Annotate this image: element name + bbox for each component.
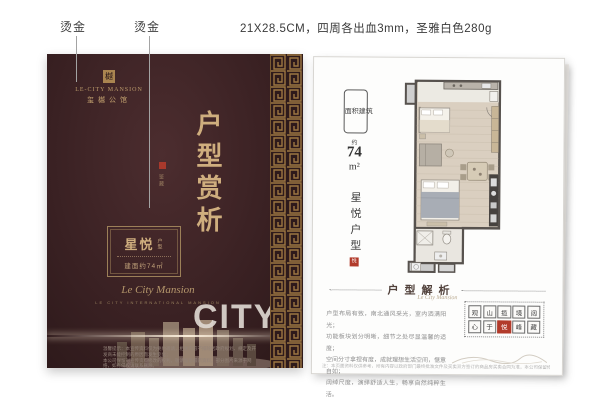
seal-cell: 山 [483,305,496,318]
leader-line-right [149,36,150,208]
area-value: 74 [343,144,365,161]
unit-name-row: 星悦 户型 [113,234,175,253]
analysis-paragraph: 户型布局有致，南北通风采光，室内洒满阳光； 功能板块划分明晰，细节之处尽显温馨的… [326,309,447,400]
unit-info-card: 星悦 户型 建面约74㎡ [107,226,181,277]
title-side-note: 鉴藏 [158,174,165,188]
area-unit: m² [343,161,365,172]
brochure-inner-page: 面 积 建 筑 约 74 m² 星悦户型 悦 [311,56,565,376]
unit-name-suffix: 户型 [157,238,164,250]
foil-stamp-label-right: 烫金 [134,18,160,35]
leader-line-left [76,36,77,82]
cover-fineprint-line: 温馨提示：本宣传资料仅为要约邀请，相关内容不排除因政府规划、规定及开发商未能控制… [103,346,258,358]
seal-cell: 境 [512,306,525,319]
cover-main-title: 户型赏析 [189,110,226,238]
unit-area: 建面约74㎡ [113,260,175,270]
fretwork-border-pattern [270,54,303,368]
paragraph-line: 户型布局有致，南北通风采光，室内洒满阳光； [326,309,446,333]
seal-cell-red: 悦 [498,320,511,333]
area-stamp-box: 面 积 建 筑 [344,89,368,133]
seal-cell: 峰 [512,320,525,333]
floor-plan-svg [403,78,522,275]
unit-info-card-inner: 星悦 户型 建面约74㎡ [110,229,178,274]
red-seal-icon: 悦 [350,257,359,266]
design-proof-canvas: 烫金 烫金 21X28.5CM，四周各出血3mm，圣雅白色280g 樾 LE-C… [0,0,600,400]
seal-cell: 心 [468,320,481,333]
unit-name: 星悦 [124,234,154,253]
paragraph-line: 功能板块划分明晰，细节之处尽显温馨的适度； [326,332,446,356]
brand-seal-icon: 樾 [103,70,115,83]
script-signature: Le City Mansion [47,284,269,296]
unit-name-vertical: 星悦户型 [347,191,363,255]
seal-cell: 揽 [498,305,511,318]
brand-name-en: LE-CITY MANSION [61,87,157,93]
cover-fineprint-line: 本公司保留对宣传资料修改的权利，敬请留意最新资料。部分图片来源于网络，如有侵权请… [103,358,258,368]
seal-cell: 藏 [527,320,540,333]
brochure-cover-panel: 樾 LE-CITY MANSION 玺樾公馆 户型赏析 鉴藏 星悦 户型 建面约… [47,54,303,368]
cover-fineprint: 温馨提示：本宣传资料仅为要约邀请，相关内容不排除因政府规划、规定及开发商未能控制… [103,346,258,368]
red-seal-icon [159,162,166,169]
area-stamp-char: 筑 [366,90,373,132]
seal-stamp-grid: 观 山 揽 境 阔 心 于 悦 峰 藏 [464,301,544,337]
foil-stamp-label-left: 烫金 [60,18,86,35]
print-spec-text: 21X28.5CM，四周各出血3mm，圣雅白色280g [240,20,492,36]
seal-cell: 观 [468,305,481,318]
divider [117,256,171,257]
light-flare [47,335,303,337]
brand-name-cn: 玺樾公馆 [61,95,157,105]
seal-cell: 于 [483,320,496,333]
dotted-rule-left [329,289,381,290]
paragraph-line: 阔绰尺度，演绎舒适人生，畅享自然纯粹生活。 [326,378,446,400]
seal-cell: 阔 [527,306,540,319]
dotted-rule-right [461,290,545,292]
